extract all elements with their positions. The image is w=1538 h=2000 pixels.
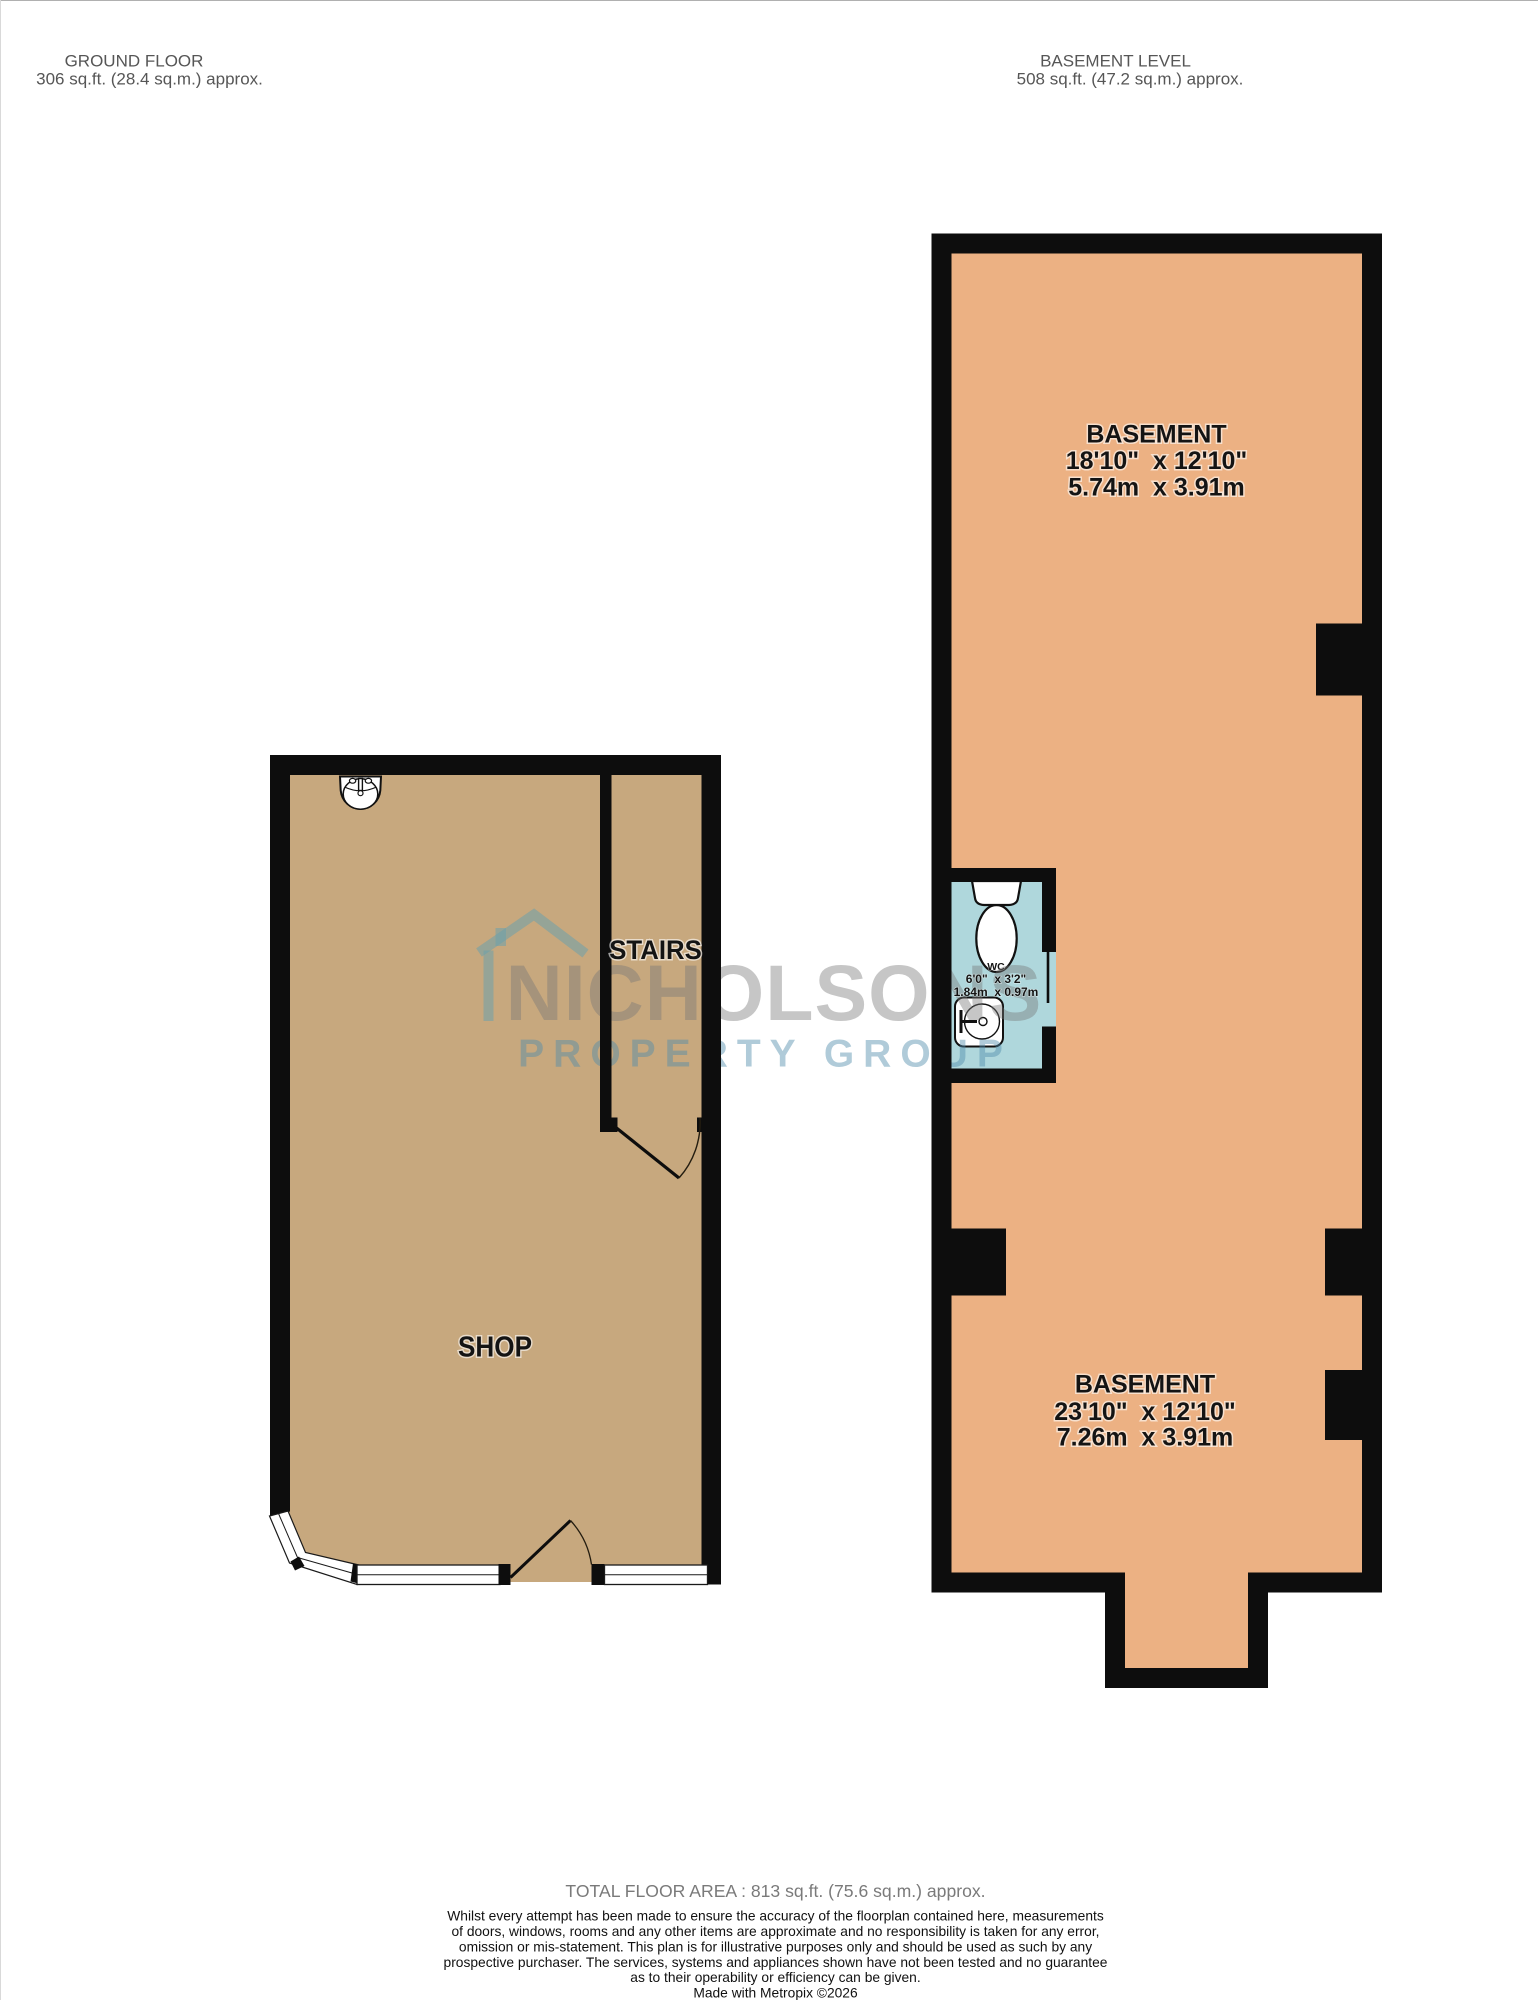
svg-text:1.84m x 0.97m: 1.84m x 0.97m bbox=[954, 985, 1039, 999]
svg-text:23'10" x 12'10": 23'10" x 12'10" bbox=[1054, 1398, 1236, 1426]
svg-text:508 sq.ft. (47.2 sq.m.) approx: 508 sq.ft. (47.2 sq.m.) approx. bbox=[1017, 70, 1244, 89]
svg-text:GROUND FLOOR: GROUND FLOOR bbox=[65, 52, 204, 71]
svg-text:omission or mis-statement. Thi: omission or mis-statement. This plan is … bbox=[459, 1939, 1092, 1954]
svg-text:5.74m x 3.91m: 5.74m x 3.91m bbox=[1068, 474, 1245, 502]
svg-text:7.26m x 3.91m: 7.26m x 3.91m bbox=[1057, 1424, 1234, 1452]
svg-text:Made with Metropix ©2026: Made with Metropix ©2026 bbox=[693, 1985, 858, 2000]
svg-text:TOTAL FLOOR AREA : 813 sq.ft.: TOTAL FLOOR AREA : 813 sq.ft. (75.6 sq.m… bbox=[565, 1881, 985, 1901]
svg-text:prospective purchaser. The ser: prospective purchaser. The services, sys… bbox=[444, 1955, 1108, 1970]
svg-text:as to their operability or eff: as to their operability or efficiency ca… bbox=[630, 1970, 920, 1985]
svg-text:18'10" x 12'10": 18'10" x 12'10" bbox=[1066, 447, 1248, 475]
svg-text:BASEMENT LEVEL: BASEMENT LEVEL bbox=[1040, 52, 1191, 71]
svg-text:306 sq.ft. (28.4 sq.m.) approx: 306 sq.ft. (28.4 sq.m.) approx. bbox=[36, 70, 263, 89]
svg-text:BASEMENT: BASEMENT bbox=[1075, 1371, 1215, 1399]
svg-text:Whilst every attempt has been: Whilst every attempt has been made to en… bbox=[447, 1909, 1104, 1924]
svg-text:BASEMENT: BASEMENT bbox=[1086, 421, 1226, 449]
svg-text:STAIRS: STAIRS bbox=[609, 935, 702, 965]
svg-text:SHOP: SHOP bbox=[458, 1332, 532, 1364]
svg-text:6'0" x 3'2": 6'0" x 3'2" bbox=[966, 972, 1026, 986]
svg-text:of doors, windows, rooms and a: of doors, windows, rooms and any other i… bbox=[451, 1924, 1099, 1939]
